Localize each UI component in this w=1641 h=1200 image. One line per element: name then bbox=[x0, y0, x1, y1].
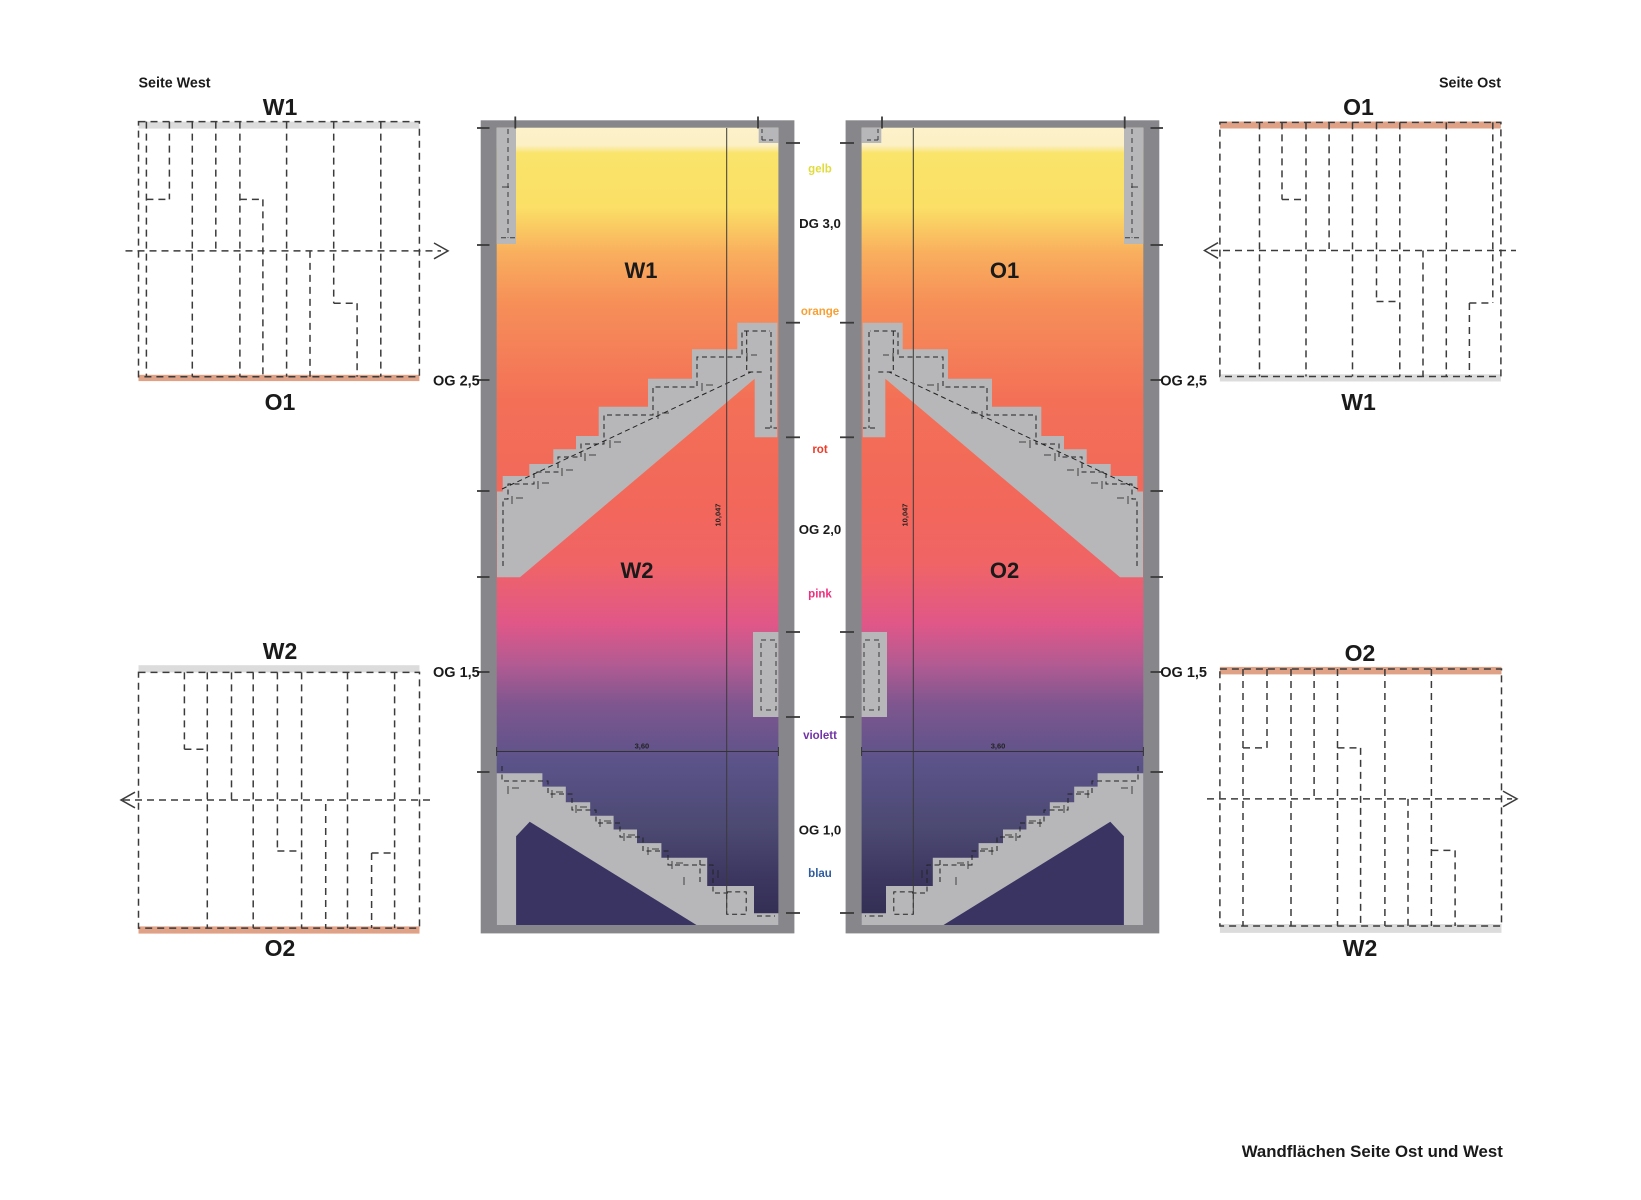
svg-text:10,047: 10,047 bbox=[901, 504, 910, 527]
svg-text:W1: W1 bbox=[1341, 389, 1376, 415]
svg-text:OG 2,5: OG 2,5 bbox=[433, 374, 480, 390]
svg-text:pink: pink bbox=[808, 589, 832, 601]
svg-text:Seite West: Seite West bbox=[139, 76, 211, 92]
svg-text:rot: rot bbox=[812, 444, 828, 456]
svg-text:blau: blau bbox=[808, 868, 832, 880]
svg-text:gelb: gelb bbox=[808, 163, 832, 175]
svg-text:O2: O2 bbox=[265, 935, 296, 961]
svg-text:O1: O1 bbox=[265, 389, 296, 415]
svg-text:OG 1,5: OG 1,5 bbox=[1160, 665, 1207, 681]
svg-text:Seite Ost: Seite Ost bbox=[1439, 76, 1501, 92]
svg-text:O1: O1 bbox=[1343, 94, 1374, 120]
svg-text:W2: W2 bbox=[263, 638, 298, 664]
svg-text:O2: O2 bbox=[1345, 640, 1376, 666]
svg-text:OG 2,5: OG 2,5 bbox=[1160, 374, 1207, 390]
svg-text:3,60: 3,60 bbox=[635, 742, 650, 751]
svg-text:W2: W2 bbox=[621, 558, 654, 583]
svg-text:violett: violett bbox=[803, 730, 837, 742]
svg-text:Wandflächen Seite Ost und West: Wandflächen Seite Ost und West bbox=[1242, 1142, 1503, 1161]
svg-text:OG 2,0: OG 2,0 bbox=[799, 522, 842, 537]
svg-text:3,60: 3,60 bbox=[991, 742, 1006, 751]
svg-text:OG 1,0: OG 1,0 bbox=[799, 823, 842, 838]
svg-text:O1: O1 bbox=[990, 258, 1019, 283]
svg-text:orange: orange bbox=[801, 306, 839, 318]
svg-text:DG 3,0: DG 3,0 bbox=[799, 216, 841, 231]
svg-text:10,047: 10,047 bbox=[714, 504, 723, 527]
svg-text:O2: O2 bbox=[990, 558, 1019, 583]
svg-text:W1: W1 bbox=[625, 258, 658, 283]
svg-text:OG 1,5: OG 1,5 bbox=[433, 665, 480, 681]
svg-text:W2: W2 bbox=[1343, 935, 1378, 961]
svg-text:W1: W1 bbox=[263, 94, 298, 120]
